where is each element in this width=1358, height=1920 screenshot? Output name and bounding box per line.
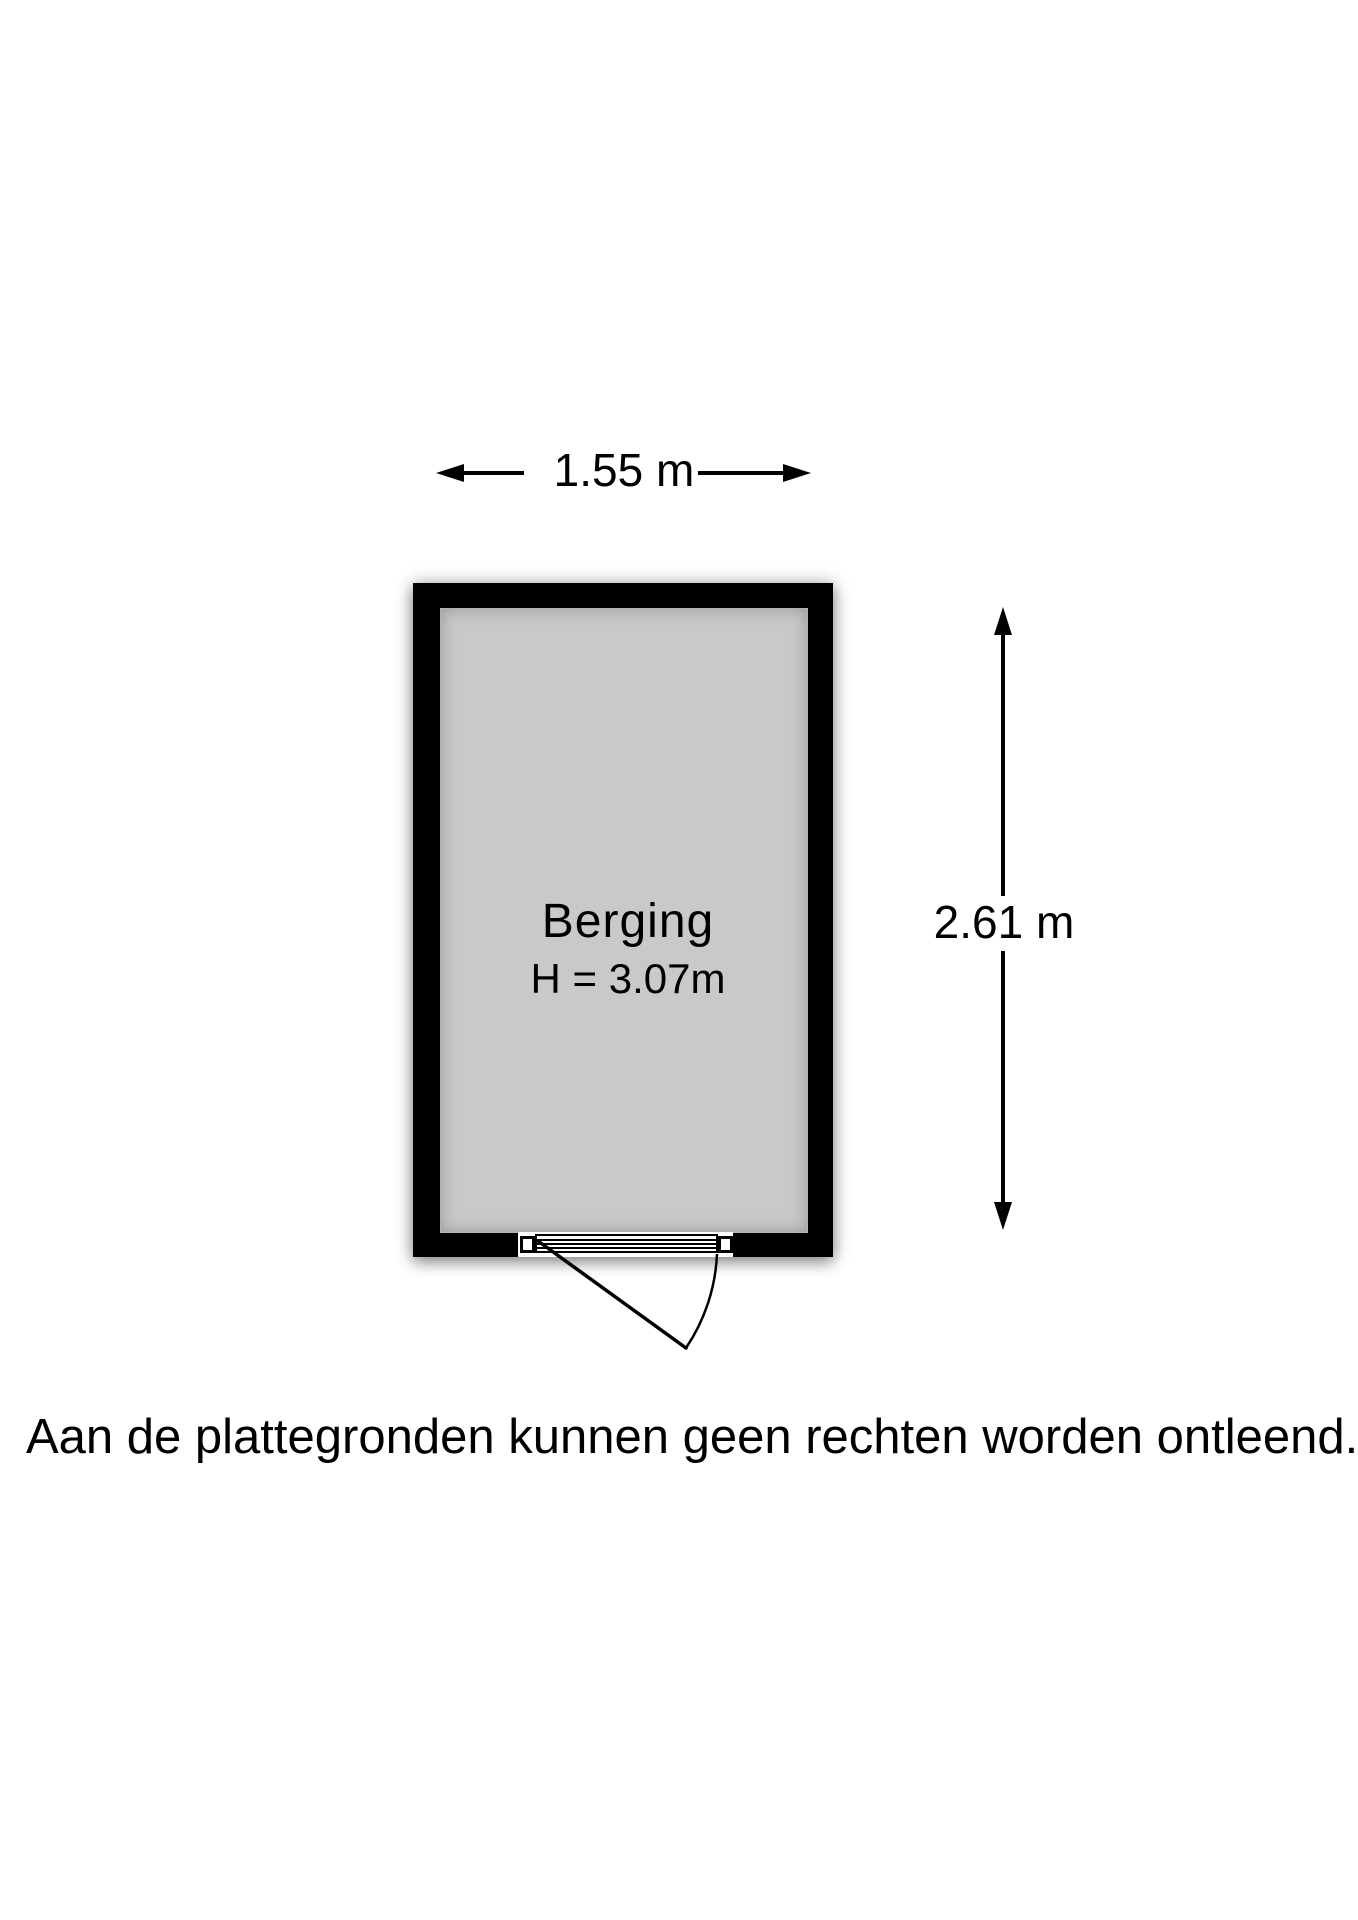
- height-dimension-label: 2.61 m: [904, 896, 1104, 949]
- dimension-line: [1001, 633, 1005, 897]
- room-label: Berging: [440, 894, 816, 949]
- arrow-right-icon: [783, 464, 811, 482]
- arrow-down-icon: [994, 1202, 1012, 1230]
- door-swing-icon: [500, 1230, 800, 1370]
- floorplan-canvas: 1.55 m 2.61 m Berging H = 3.07m Aan de p…: [0, 0, 1358, 1920]
- disclaimer-text: Aan de plattegronden kunnen geen rechten…: [26, 1409, 1346, 1465]
- dimension-line: [698, 471, 786, 475]
- ceiling-height-label: H = 3.07m: [440, 955, 816, 1003]
- dimension-line: [1001, 951, 1005, 1208]
- width-dimension-label: 1.55 m: [524, 444, 724, 497]
- arrow-up-icon: [994, 607, 1012, 635]
- arrow-left-icon: [436, 464, 464, 482]
